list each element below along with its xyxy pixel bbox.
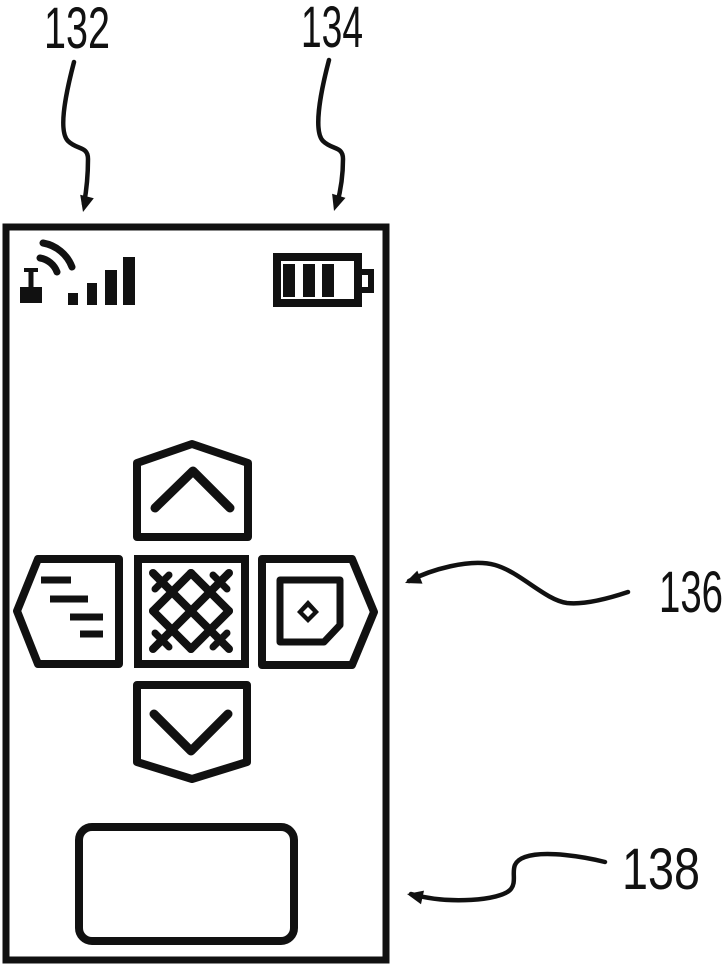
leader-arrow-138 (407, 854, 605, 904)
bottom-button[interactable] (79, 827, 294, 941)
signal-bars (68, 257, 135, 305)
ref-label-138: 138 (622, 837, 700, 902)
battery-icon (277, 257, 371, 303)
ref-label-134: 134 (301, 0, 363, 60)
device-body (6, 227, 386, 960)
ref-label-136: 136 (659, 560, 723, 625)
nav-down-button[interactable] (137, 685, 247, 779)
crosshatch-icon (153, 573, 229, 649)
leader-arrow-136 (405, 563, 628, 603)
patent-figure: 132 134 136 138 (0, 0, 724, 974)
chevron-down-icon (154, 714, 228, 751)
nav-right-button[interactable] (262, 559, 374, 665)
nav-left-button[interactable] (17, 559, 119, 664)
leader-arrow-132 (63, 62, 93, 212)
nav-center-button[interactable] (138, 559, 245, 664)
leader-arrow-134 (318, 60, 345, 211)
nav-up-button[interactable] (137, 444, 248, 537)
nav-pad (17, 444, 374, 779)
figure-drawing: 132 134 136 138 (0, 0, 724, 974)
ref-label-132: 132 (44, 0, 110, 61)
text-lines-icon (41, 580, 103, 634)
battery-segments (283, 264, 334, 297)
antenna-signal-icon (20, 243, 135, 305)
screen-dot-icon (280, 580, 340, 642)
chevron-up-icon (155, 471, 230, 508)
